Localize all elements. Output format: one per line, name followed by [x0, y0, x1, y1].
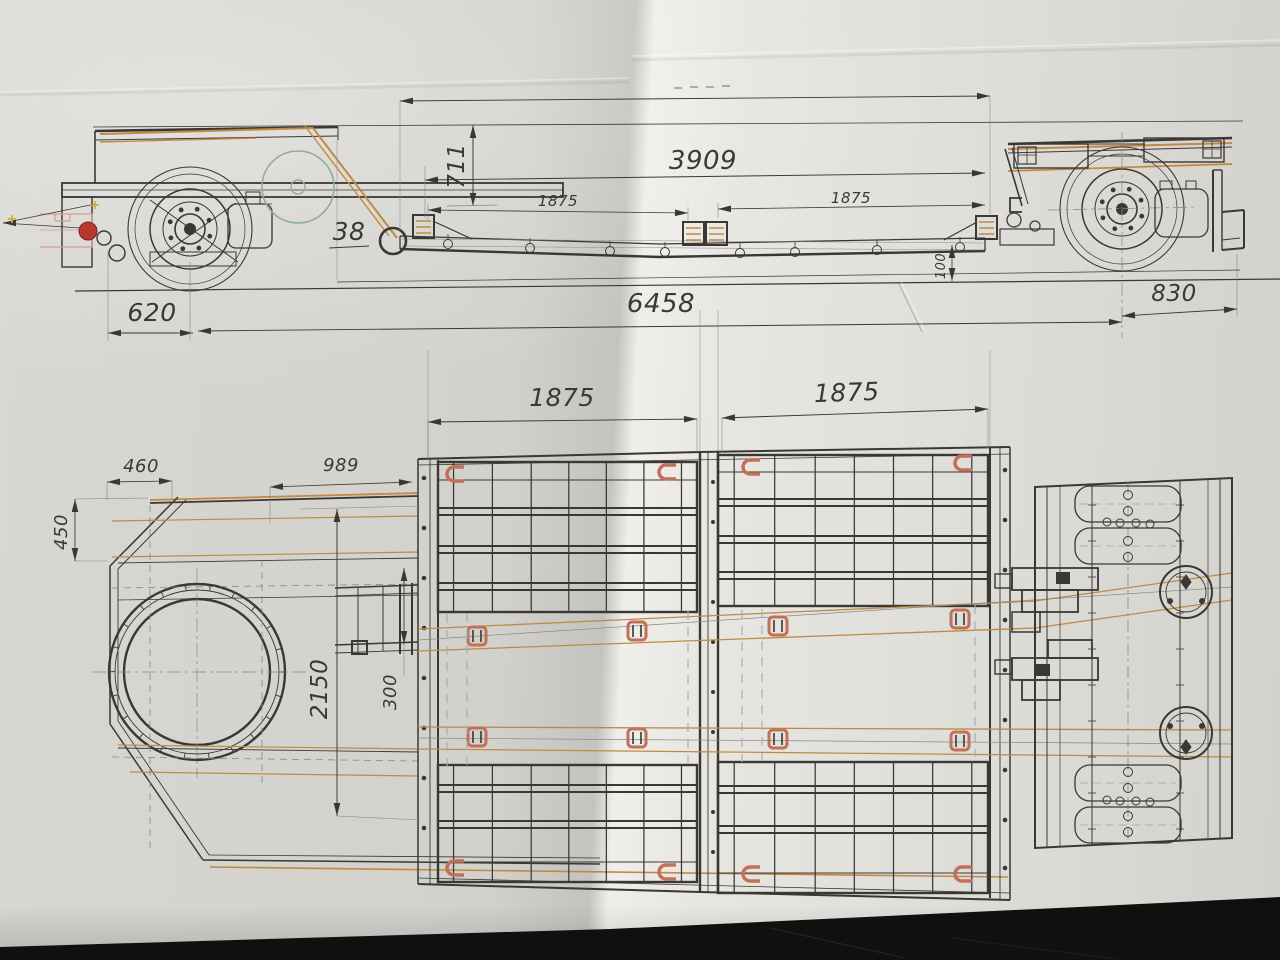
dim-plan-right-1875: 1875 [813, 377, 880, 408]
dim-989: 989 [323, 455, 359, 476]
bogie-plan [995, 478, 1232, 848]
photo-background: 3909 711 38 1875 1875 100 620 6458 830 1… [0, 0, 1280, 960]
dim-beam-right-1875: 1875 [831, 189, 871, 207]
dim-3909: 3909 [669, 146, 737, 176]
drawbar-detail [3, 201, 99, 247]
dim-620: 620 [127, 298, 176, 327]
deck-beam [329, 215, 997, 258]
plan-view: 1875 1875 460 989 450 2150 300 [51, 310, 1232, 900]
dim-beam-left-1875: 1875 [538, 192, 578, 210]
dim-830: 830 [1151, 281, 1196, 307]
dim-711: 711 [444, 143, 470, 188]
dim-100: 100 [934, 253, 949, 279]
construction-lines [428, 310, 990, 459]
dim-6458: 6458 [627, 289, 695, 319]
deck-plan [418, 447, 1232, 900]
dim-38: 38 [333, 217, 366, 246]
dim-450: 450 [51, 514, 72, 550]
dim-300: 300 [380, 674, 401, 710]
dim-460: 460 [123, 456, 159, 477]
trailer-technical-drawing: 3909 711 38 1875 1875 100 620 6458 830 1… [0, 0, 1280, 960]
table-scratches [770, 928, 1118, 959]
dim-2150: 2150 [307, 659, 333, 720]
rear-bogie [1000, 132, 1244, 338]
front-dolly [62, 127, 563, 291]
gooseneck-plan [92, 493, 1008, 877]
side-elevation-view: 3909 711 38 1875 1875 100 620 6458 830 [3, 86, 1280, 341]
dim-plan-left-1875: 1875 [529, 383, 595, 412]
